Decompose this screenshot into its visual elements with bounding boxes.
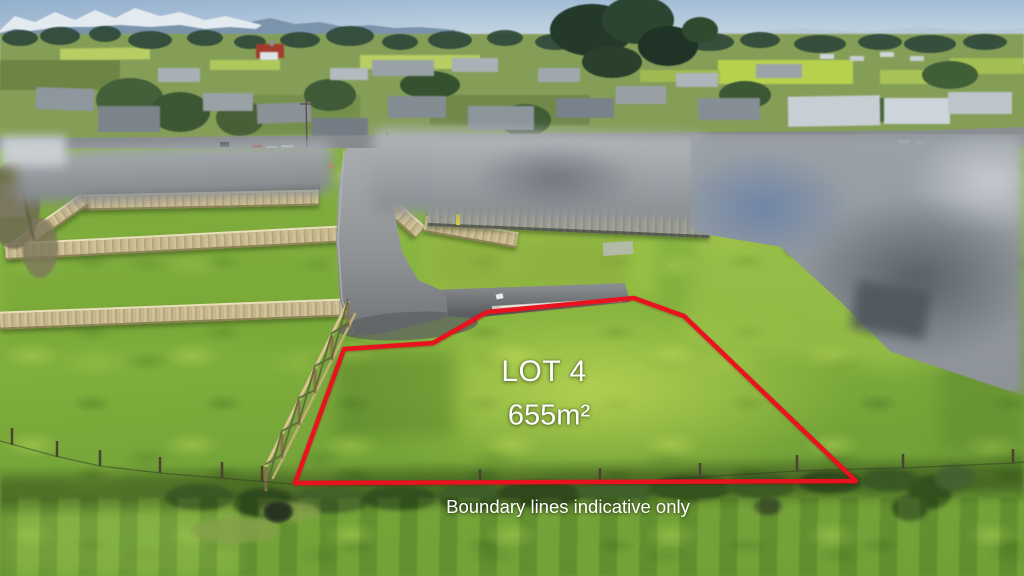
aerial-property-photo: LOT 4 655m² Boundary lines indicative on… <box>0 0 1024 576</box>
lot-label: LOT 4 <box>501 355 586 389</box>
boundary-polygon <box>295 298 856 483</box>
lot-area-label: 655m² <box>508 400 590 433</box>
lot-boundary-overlay <box>0 0 1024 576</box>
boundary-disclaimer: Boundary lines indicative only <box>446 496 690 518</box>
